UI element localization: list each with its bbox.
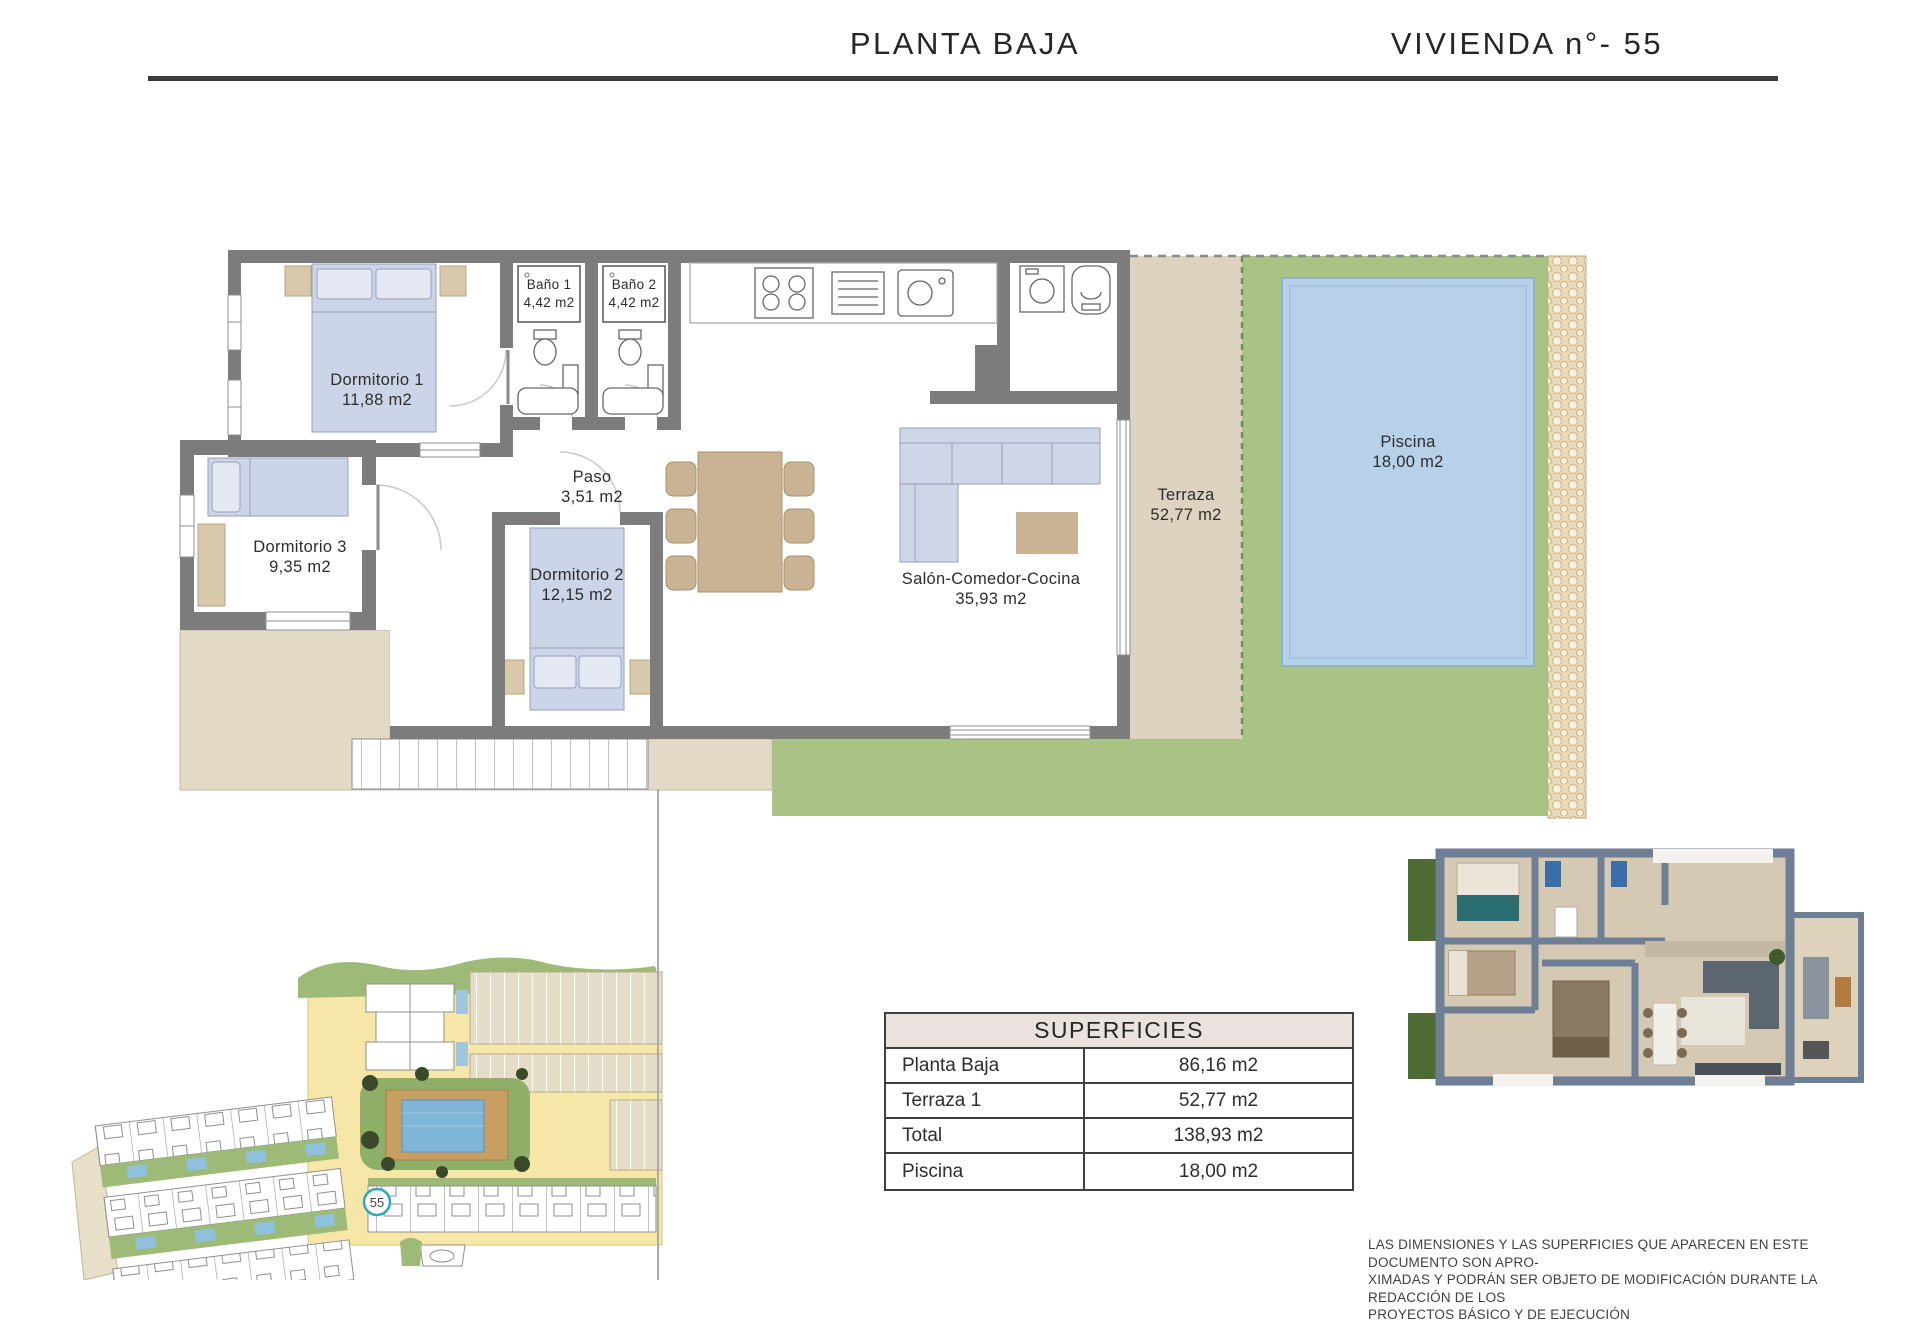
table-row: Total 138,93 m2 [886, 1119, 1352, 1154]
villa-rows [95, 1097, 356, 1280]
page-title-plan: PLANTA BAJA [850, 26, 1080, 62]
dining-table-icon [666, 452, 814, 592]
sink-icon [898, 270, 953, 316]
site-plan: 55 [70, 950, 670, 1280]
room-label-bano-2: Baño 24,42 m2 [609, 276, 660, 312]
room-label-salon: Salón-Comedor-Cocina35,93 m2 [902, 569, 1080, 609]
pool [1282, 278, 1534, 666]
table-row: Piscina 18,00 m2 [886, 1154, 1352, 1189]
render-3d-thumbnail [1405, 845, 1865, 1090]
room-label-bano-1: Baño 14,42 m2 [524, 276, 575, 312]
washer-icon [1020, 266, 1064, 312]
svg-text:55: 55 [370, 1195, 384, 1210]
shower-icon [518, 388, 578, 414]
shower-icon [603, 388, 663, 414]
vent-icon [832, 272, 884, 314]
toilet-icon [534, 330, 556, 365]
table-row: Planta Baja 86,16 m2 [886, 1049, 1352, 1084]
room-label-terraza: Terraza52,77 m2 [1150, 485, 1221, 525]
unit-55-badge: 55 [364, 1189, 390, 1215]
table-row: Terraza 1 52,77 m2 [886, 1084, 1352, 1119]
room-label-paso: Paso3,51 m2 [561, 467, 623, 507]
townhouse-row [368, 1178, 656, 1232]
boiler-icon [1072, 266, 1110, 314]
surfaces-table: SUPERFICIES Planta Baja 86,16 m2 Terraza… [884, 1012, 1354, 1191]
room-label-piscina: Piscina18,00 m2 [1372, 432, 1443, 472]
stove-icon [755, 268, 813, 318]
room-label-dormitorio-2: Dormitorio 212,15 m2 [530, 565, 623, 605]
room-label-dormitorio-3: Dormitorio 39,35 m2 [253, 537, 346, 577]
surfaces-table-title: SUPERFICIES [886, 1014, 1352, 1049]
section-divider [657, 789, 659, 1280]
rug-icon [1016, 512, 1078, 554]
community-garden [360, 1067, 530, 1178]
room-label-dormitorio-1: Dormitorio 111,88 m2 [330, 370, 423, 410]
header-rule [148, 76, 1778, 81]
page-title-unit: VIVIENDA n°- 55 [1391, 26, 1663, 62]
floor-plan-drawing [140, 200, 1620, 840]
par­king-area [470, 972, 662, 1044]
toilet-icon [619, 330, 641, 365]
stairs [352, 739, 648, 789]
